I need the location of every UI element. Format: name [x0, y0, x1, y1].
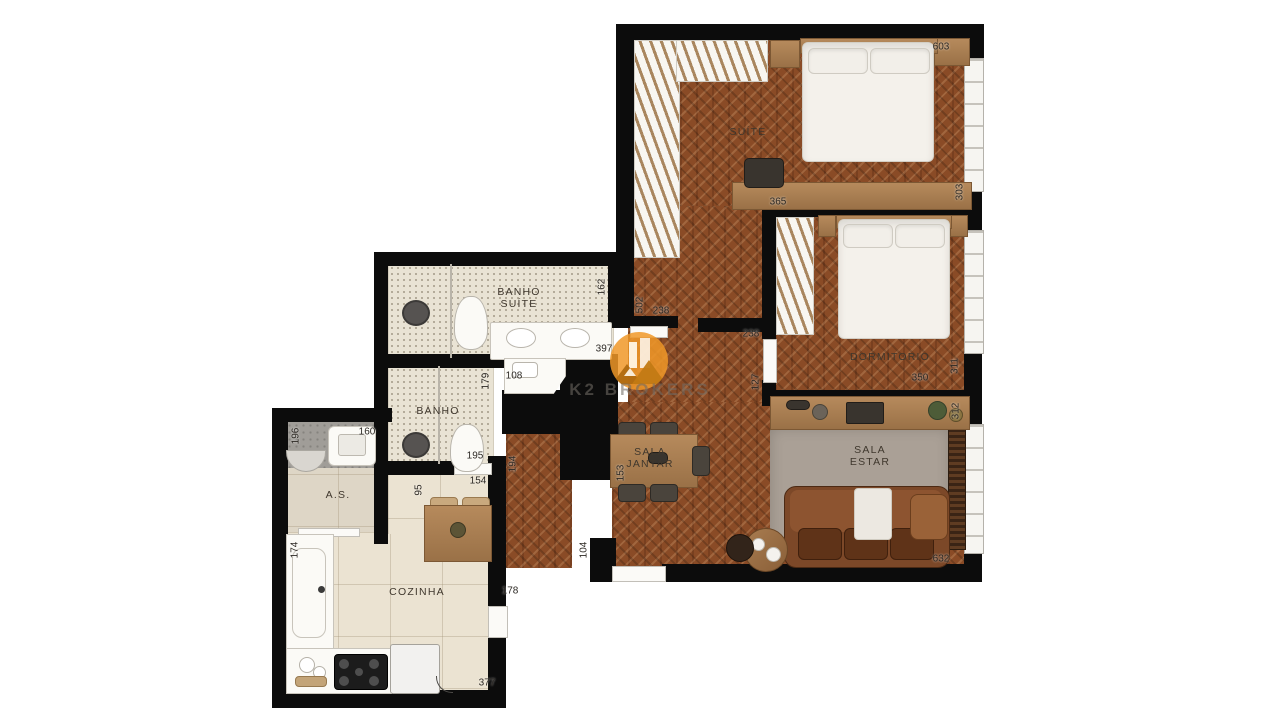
sofa-arm-cushion: [910, 494, 948, 540]
suite-pillow: [808, 48, 868, 74]
dining-chair: [650, 484, 678, 502]
decor-tray: [786, 400, 810, 410]
dim-kitchen-bottom: 377: [479, 678, 496, 689]
room-label-banho: BANHO: [416, 405, 459, 417]
kitchen-sink: [292, 548, 326, 638]
dim-entry-wall: 104: [579, 542, 590, 559]
room-label-as: A.S.: [326, 489, 351, 501]
dim-kitchen-right: 178: [502, 586, 519, 597]
room-label-dormitorio: DORMITORIO: [850, 351, 930, 363]
dim-estar-right: 312: [951, 403, 962, 420]
suite-pillow: [870, 48, 930, 74]
fridge: [390, 644, 440, 694]
room-label-sala-estar: SALA ESTAR: [850, 444, 890, 468]
shower-drain: [402, 300, 430, 326]
dim-vanity: 108: [506, 371, 523, 382]
dining-chair: [618, 484, 646, 502]
wall-segment: [616, 24, 634, 264]
wall-segment: [762, 205, 776, 339]
dim-as-left: 196: [291, 428, 302, 445]
sofa-cushion: [798, 528, 842, 560]
dim-hall-b: 238: [743, 329, 760, 340]
dim-banho-suite-counter: 397: [596, 344, 613, 355]
dim-nook-top: 154: [470, 476, 487, 487]
room-label-suite: SUÍTE: [730, 126, 767, 138]
dim-as-sink: 160: [359, 427, 376, 438]
dim-dorm-bottom: 350: [912, 373, 929, 384]
tv: [846, 402, 884, 424]
watermark-brand: K2 BROKERS: [569, 380, 710, 400]
room-label-line: SALA: [626, 446, 673, 458]
dim-jantar-left: 153: [616, 465, 627, 482]
floor-plan: SUÍTE DORMITORIO BANHO SUÍTE BANHO SALA …: [0, 0, 1280, 720]
dim-as-lower-left: 174: [290, 542, 301, 559]
dim-banho-right: 179: [481, 373, 492, 390]
window-sala-estar: [964, 424, 984, 554]
sala-estar-blinds: [948, 428, 966, 550]
dorm-nightstand-left: [818, 215, 836, 237]
entrance-door-sill: [612, 566, 666, 582]
toilet: [454, 296, 488, 350]
sofa-throw-blanket: [854, 488, 892, 540]
burner: [369, 659, 379, 669]
wall-segment: [374, 252, 388, 544]
dining-chair: [692, 446, 710, 476]
suite-wardrobe-left: [634, 40, 680, 258]
window-suite: [964, 58, 984, 192]
room-label-sala-jantar: SALA JANTAR: [626, 446, 673, 470]
dim-hall-a: 238: [653, 306, 670, 317]
faucet: [318, 586, 325, 593]
wall-segment: [964, 550, 982, 582]
burner: [339, 676, 349, 686]
wall-segment: [374, 354, 508, 368]
shower-drain: [402, 432, 430, 458]
dim-hall-suite: 502: [635, 297, 646, 314]
room-label-line: SUÍTE: [497, 298, 540, 310]
dormitorio-door-sill: [763, 339, 777, 383]
dorm-pillow: [843, 224, 893, 248]
burner: [369, 676, 379, 686]
wall-segment: [374, 461, 456, 475]
nook-decor: [450, 522, 466, 538]
dim-suite-right: 303: [955, 184, 966, 201]
dorm-nightstand-right: [950, 215, 968, 237]
wall-segment: [272, 408, 392, 422]
dim-banho-suite-right: 162: [597, 279, 608, 296]
suite-nightstand-left: [770, 40, 800, 68]
wall-segment: [488, 634, 506, 708]
burner: [339, 659, 349, 669]
room-label-cozinha: COZINHA: [389, 586, 445, 598]
sink-basin: [560, 328, 590, 348]
dormitorio-closet: [776, 217, 814, 335]
kitchen-door-sill: [488, 606, 508, 638]
dorm-pillow: [895, 224, 945, 248]
cup: [766, 547, 781, 562]
shower-partition: [450, 264, 452, 358]
room-label-line: ESTAR: [850, 456, 890, 468]
room-label-line: JANTAR: [626, 458, 673, 470]
dim-suite-desk: 365: [770, 197, 787, 208]
plant: [928, 401, 947, 420]
burner: [355, 668, 363, 676]
dim-hall-lower: 194: [508, 456, 519, 473]
dim-dorm-door: 127: [751, 374, 762, 391]
suite-desk-chair: [744, 158, 784, 188]
stool: [726, 534, 754, 562]
toilet: [450, 424, 484, 472]
dim-banho-bottom: 195: [467, 451, 484, 462]
decor-disc: [812, 404, 828, 420]
wall-segment: [502, 390, 562, 434]
room-label-banho-suite: BANHO SUÍTE: [497, 286, 540, 310]
cutting-board: [295, 676, 327, 687]
sink-basin: [506, 328, 536, 348]
suite-wardrobe-top: [676, 40, 768, 82]
logo-mountain-peak: [624, 368, 636, 376]
room-label-line: SALA: [850, 444, 890, 456]
dim-dorm-right: 311: [950, 358, 961, 374]
window-dormitorio: [964, 230, 984, 354]
dim-estar-bottom: 632: [933, 554, 950, 565]
dim-suite-top: 603: [933, 42, 950, 53]
dim-nook-left: 95: [414, 484, 425, 495]
room-label-line: BANHO: [497, 286, 540, 298]
wall-segment: [376, 252, 634, 266]
